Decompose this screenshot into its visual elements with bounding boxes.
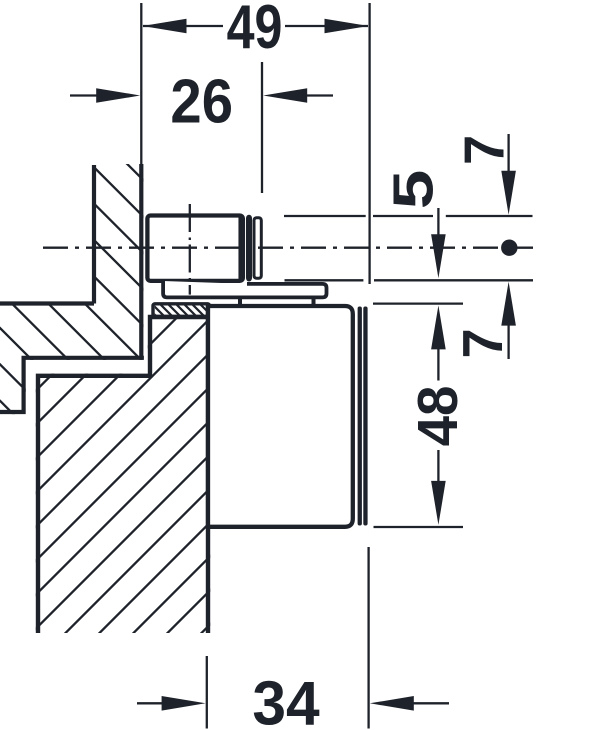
svg-text:5: 5 bbox=[381, 170, 445, 210]
svg-text:26: 26 bbox=[170, 66, 233, 136]
svg-text:49: 49 bbox=[227, 0, 283, 61]
svg-text:48: 48 bbox=[405, 386, 469, 447]
svg-text:7: 7 bbox=[451, 328, 515, 358]
svg-text:7: 7 bbox=[452, 135, 516, 165]
svg-text:34: 34 bbox=[252, 669, 319, 730]
